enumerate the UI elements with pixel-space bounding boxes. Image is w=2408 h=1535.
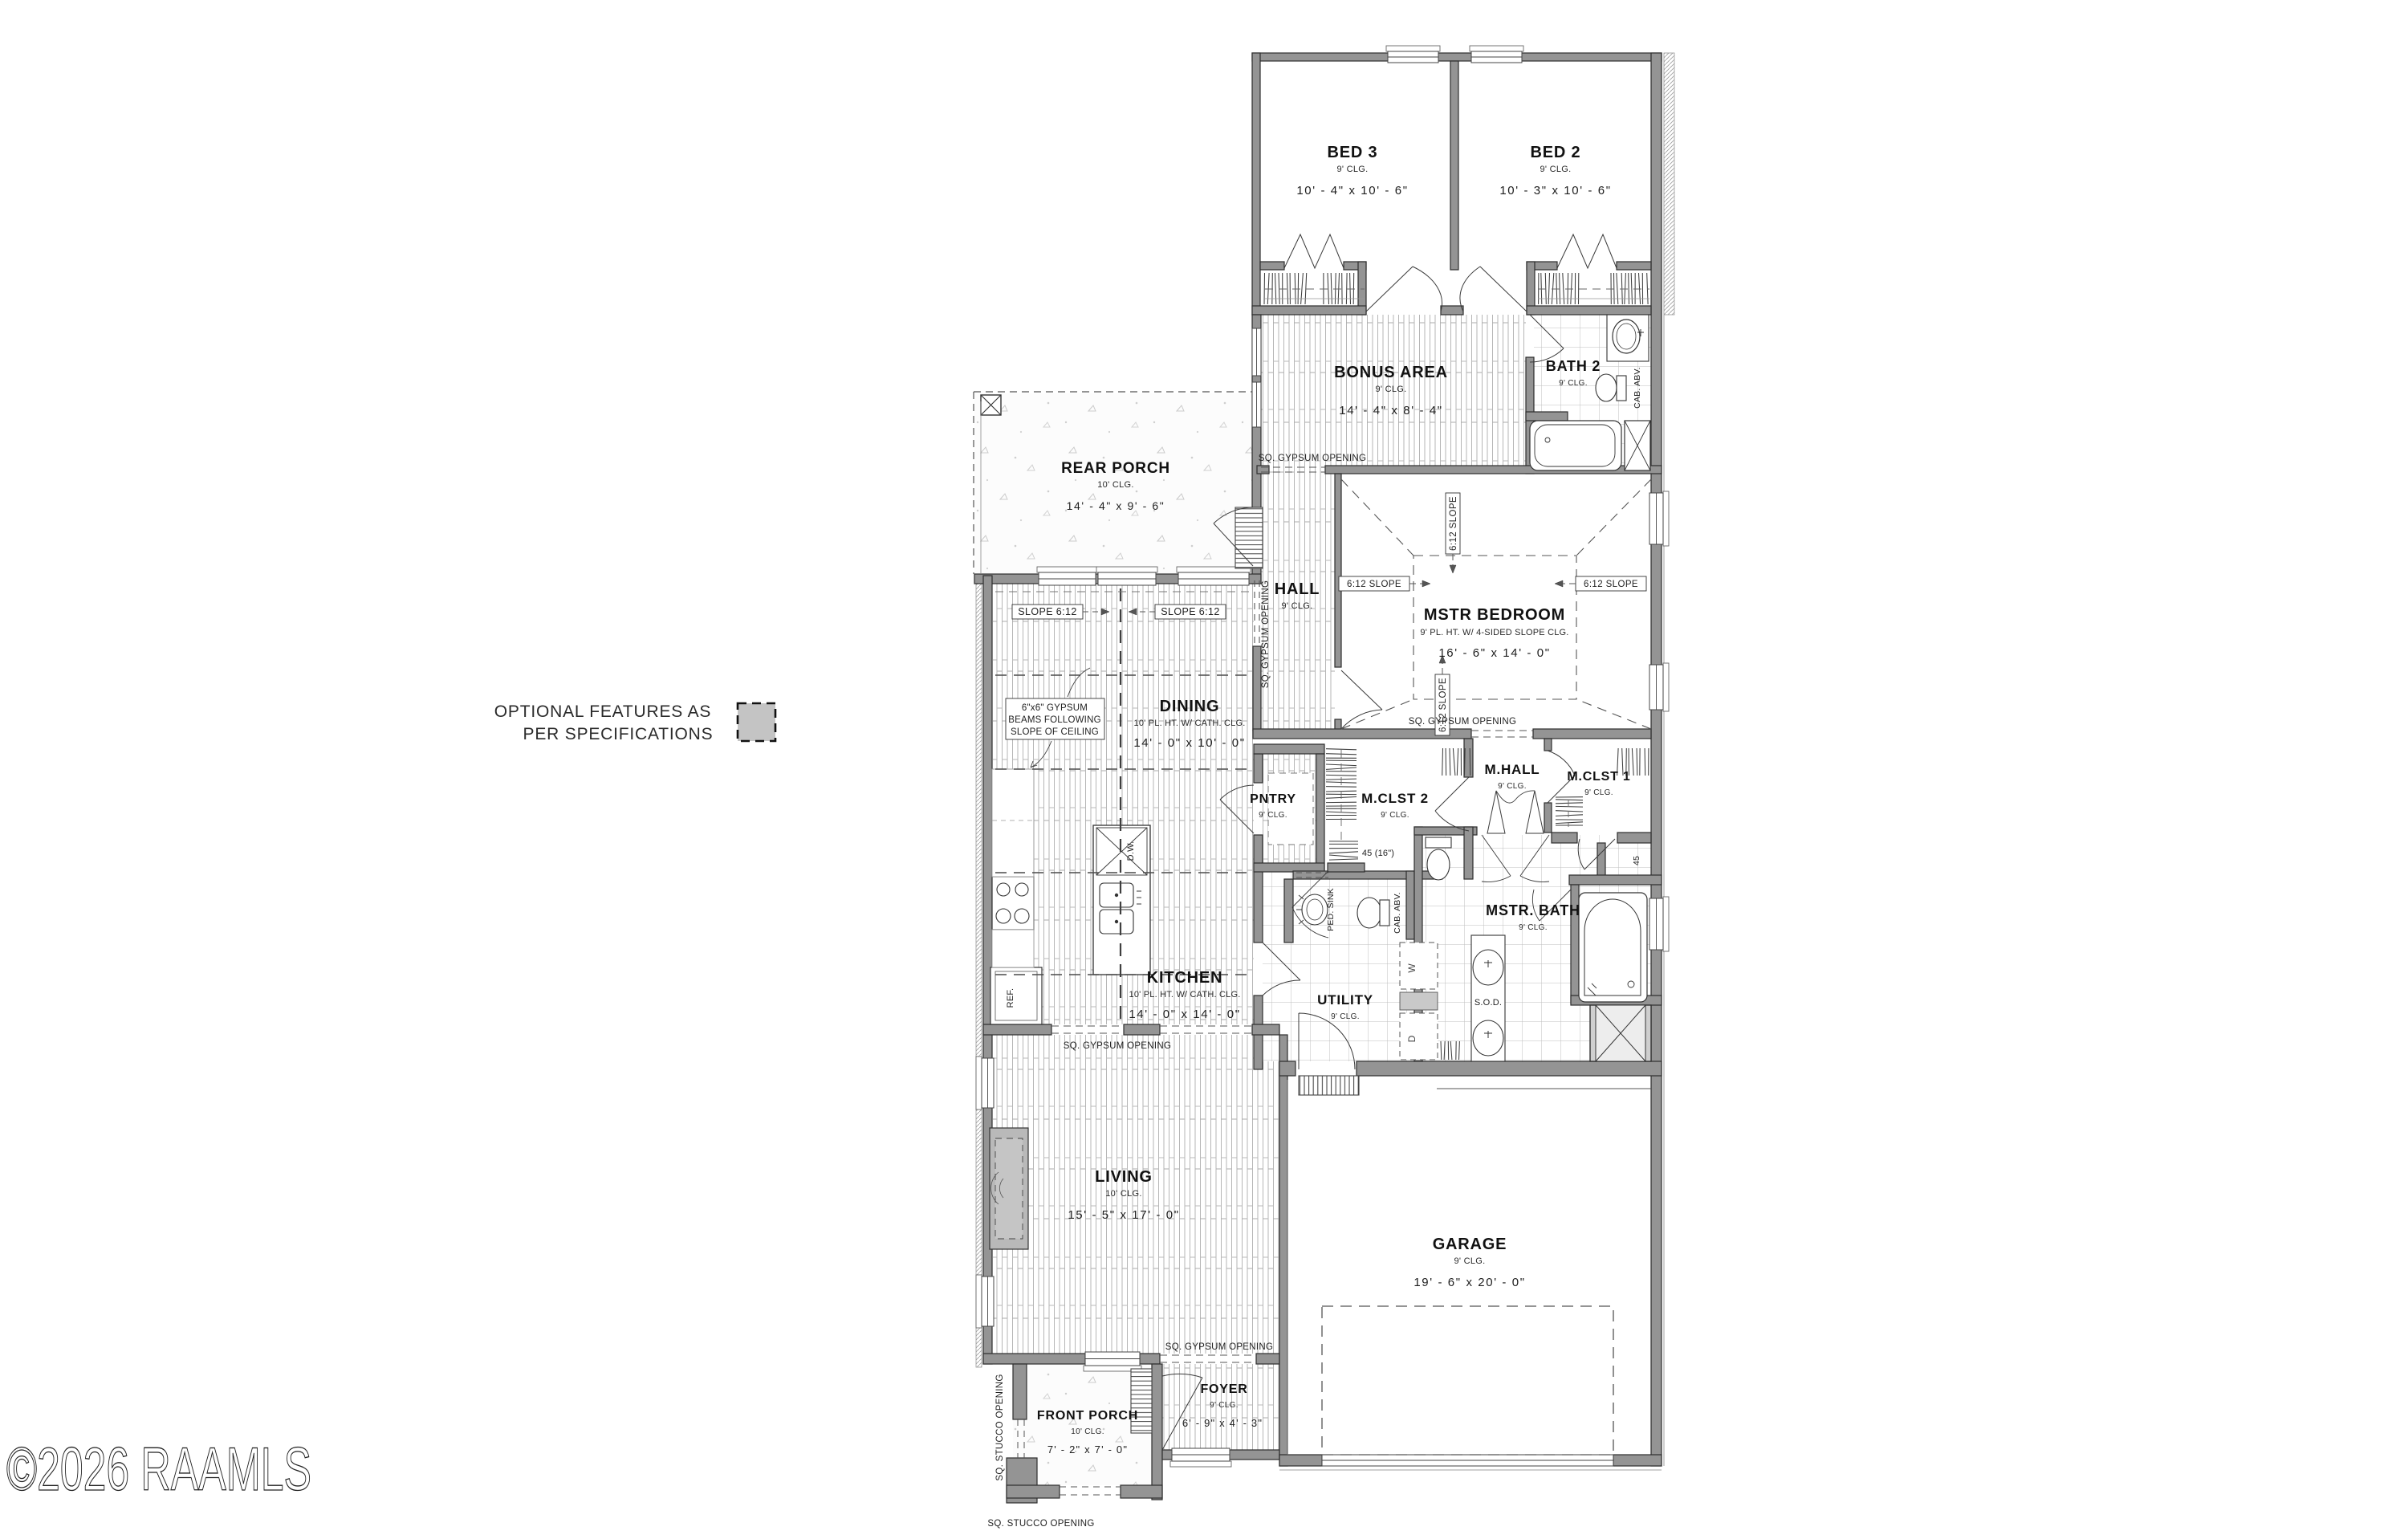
svg-text:SLOPE OF CEILING: SLOPE OF CEILING	[1011, 727, 1099, 737]
svg-text:9' CLG.: 9' CLG.	[1281, 601, 1312, 611]
svg-text:10' - 3" x 10' - 6": 10' - 3" x 10' - 6"	[1499, 184, 1611, 197]
svg-text:19' - 6" x 20' - 0": 19' - 6" x 20' - 0"	[1413, 1276, 1525, 1289]
svg-text:9' CLG.: 9' CLG.	[1584, 788, 1613, 797]
svg-text:9' CLG.: 9' CLG.	[1540, 165, 1571, 174]
svg-text:MSTR BEDROOM: MSTR BEDROOM	[1424, 606, 1565, 624]
svg-text:M.CLST 1: M.CLST 1	[1567, 770, 1630, 784]
svg-text:9' CLG.: 9' CLG.	[1519, 923, 1548, 932]
svg-text:9' CLG.: 9' CLG.	[1210, 1401, 1239, 1410]
svg-text:6"x6" GYPSUM: 6"x6" GYPSUM	[1022, 703, 1088, 713]
svg-text:LIVING: LIVING	[1095, 1168, 1152, 1186]
svg-text:FRONT PORCH: FRONT PORCH	[1037, 1409, 1138, 1423]
svg-text:PER SPECIFICATIONS: PER SPECIFICATIONS	[523, 725, 714, 743]
svg-text:9' CLG.: 9' CLG.	[1375, 385, 1406, 394]
svg-text:SQ. GYPSUM OPENING: SQ. GYPSUM OPENING	[1261, 580, 1271, 688]
svg-text:REF.: REF.	[1006, 988, 1015, 1008]
svg-text:9' CLG.: 9' CLG.	[1331, 1012, 1360, 1021]
svg-text:BONUS AREA: BONUS AREA	[1334, 364, 1448, 381]
svg-text:CAB. ABV.: CAB. ABV.	[1633, 367, 1642, 409]
svg-text:UTILITY: UTILITY	[1317, 992, 1373, 1008]
svg-text:BED 3: BED 3	[1328, 144, 1378, 161]
svg-text:MSTR. BATH: MSTR. BATH	[1486, 902, 1580, 918]
svg-text:45 (16"): 45 (16")	[1362, 849, 1394, 858]
svg-text:SQ. STUCCO OPENING: SQ. STUCCO OPENING	[987, 1519, 1094, 1529]
svg-text:9' CLG.: 9' CLG.	[1559, 379, 1588, 388]
svg-text:45: 45	[1632, 856, 1641, 865]
svg-text:14' - 0" x 10' - 0": 14' - 0" x 10' - 0"	[1133, 736, 1245, 750]
svg-text:SQ. GYPSUM OPENING: SQ. GYPSUM OPENING	[1409, 717, 1516, 727]
svg-text:10' CLG.: 10' CLG.	[1071, 1427, 1104, 1436]
svg-text:M.HALL: M.HALL	[1484, 762, 1540, 777]
svg-text:DINING: DINING	[1160, 698, 1220, 715]
svg-text:15' - 5" x 17' - 0": 15' - 5" x 17' - 0"	[1068, 1208, 1179, 1222]
svg-text:OPTIONAL FEATURES AS: OPTIONAL FEATURES AS	[494, 702, 711, 721]
svg-text:FOYER: FOYER	[1200, 1382, 1247, 1396]
svg-text:M.CLST 2: M.CLST 2	[1361, 791, 1429, 806]
svg-text:14' - 4" x 9' - 6": 14' - 4" x 9' - 6"	[1067, 499, 1165, 512]
svg-text:SQ. GYPSUM OPENING: SQ. GYPSUM OPENING	[1064, 1041, 1171, 1051]
svg-text:9' PL. HT. W/ 4-SIDED SLOPE CL: 9' PL. HT. W/ 4-SIDED SLOPE CLG.	[1420, 628, 1568, 637]
svg-text:6:12 SLOPE: 6:12 SLOPE	[1347, 580, 1401, 589]
svg-text:SLOPE 6:12: SLOPE 6:12	[1018, 606, 1077, 617]
svg-text:9' CLG.: 9' CLG.	[1259, 811, 1287, 820]
svg-text:6:12 SLOPE: 6:12 SLOPE	[1449, 496, 1458, 551]
svg-text:HALL: HALL	[1275, 580, 1320, 598]
svg-text:9' CLG.: 9' CLG.	[1498, 782, 1527, 791]
svg-text:10' - 4" x 10' - 6": 10' - 4" x 10' - 6"	[1296, 184, 1408, 197]
svg-text:CAB. ABV.: CAB. ABV.	[1393, 892, 1402, 934]
svg-text:SQ. STUCCO OPENING: SQ. STUCCO OPENING	[995, 1374, 1005, 1480]
svg-text:9' CLG.: 9' CLG.	[1336, 165, 1368, 174]
svg-text:©2026 RAAMLS: ©2026 RAAMLS	[6, 1435, 311, 1504]
svg-text:SQ. GYPSUM OPENING: SQ. GYPSUM OPENING	[1165, 1342, 1273, 1352]
svg-text:16' - 6" x 14' - 0": 16' - 6" x 14' - 0"	[1438, 646, 1550, 660]
svg-text:BATH 2: BATH 2	[1546, 358, 1601, 374]
svg-text:BED 2: BED 2	[1531, 144, 1581, 161]
svg-text:D.W.: D.W.	[1126, 841, 1136, 861]
svg-text:BEAMS FOLLOWING: BEAMS FOLLOWING	[1008, 715, 1100, 725]
svg-text:W: W	[1406, 963, 1418, 973]
svg-text:10' CLG.: 10' CLG.	[1105, 1189, 1141, 1199]
svg-text:7' - 2" x 7' - 0": 7' - 2" x 7' - 0"	[1047, 1443, 1128, 1456]
svg-text:GARAGE: GARAGE	[1433, 1236, 1507, 1253]
svg-text:14' - 0" x 14' - 0": 14' - 0" x 14' - 0"	[1129, 1008, 1240, 1021]
svg-text:6:12 SLOPE: 6:12 SLOPE	[1584, 580, 1638, 589]
svg-text:PED. SINK: PED. SINK	[1326, 888, 1336, 931]
svg-text:10' PL. HT. W/ CATH. CLG.: 10' PL. HT. W/ CATH. CLG.	[1129, 990, 1241, 1000]
svg-text:9' CLG.: 9' CLG.	[1454, 1256, 1485, 1266]
svg-text:10' PL. HT. W/ CATH. CLG.: 10' PL. HT. W/ CATH. CLG.	[1134, 719, 1246, 728]
svg-text:SLOPE 6:12: SLOPE 6:12	[1161, 606, 1220, 617]
svg-text:SQ. GYPSUM OPENING: SQ. GYPSUM OPENING	[1259, 454, 1366, 463]
svg-text:KITCHEN: KITCHEN	[1147, 969, 1223, 987]
svg-text:REAR PORCH: REAR PORCH	[1061, 460, 1170, 477]
svg-text:9' CLG.: 9' CLG.	[1381, 811, 1409, 820]
svg-text:14' - 4" x 8' - 4": 14' - 4" x 8' - 4"	[1339, 404, 1442, 417]
svg-text:6' - 9" x 4' - 3": 6' - 9" x 4' - 3"	[1182, 1417, 1263, 1429]
svg-text:S.O.D.: S.O.D.	[1474, 998, 1502, 1008]
svg-text:D: D	[1406, 1035, 1418, 1042]
svg-text:10' CLG.: 10' CLG.	[1097, 480, 1133, 490]
svg-text:PNTRY: PNTRY	[1250, 792, 1296, 806]
